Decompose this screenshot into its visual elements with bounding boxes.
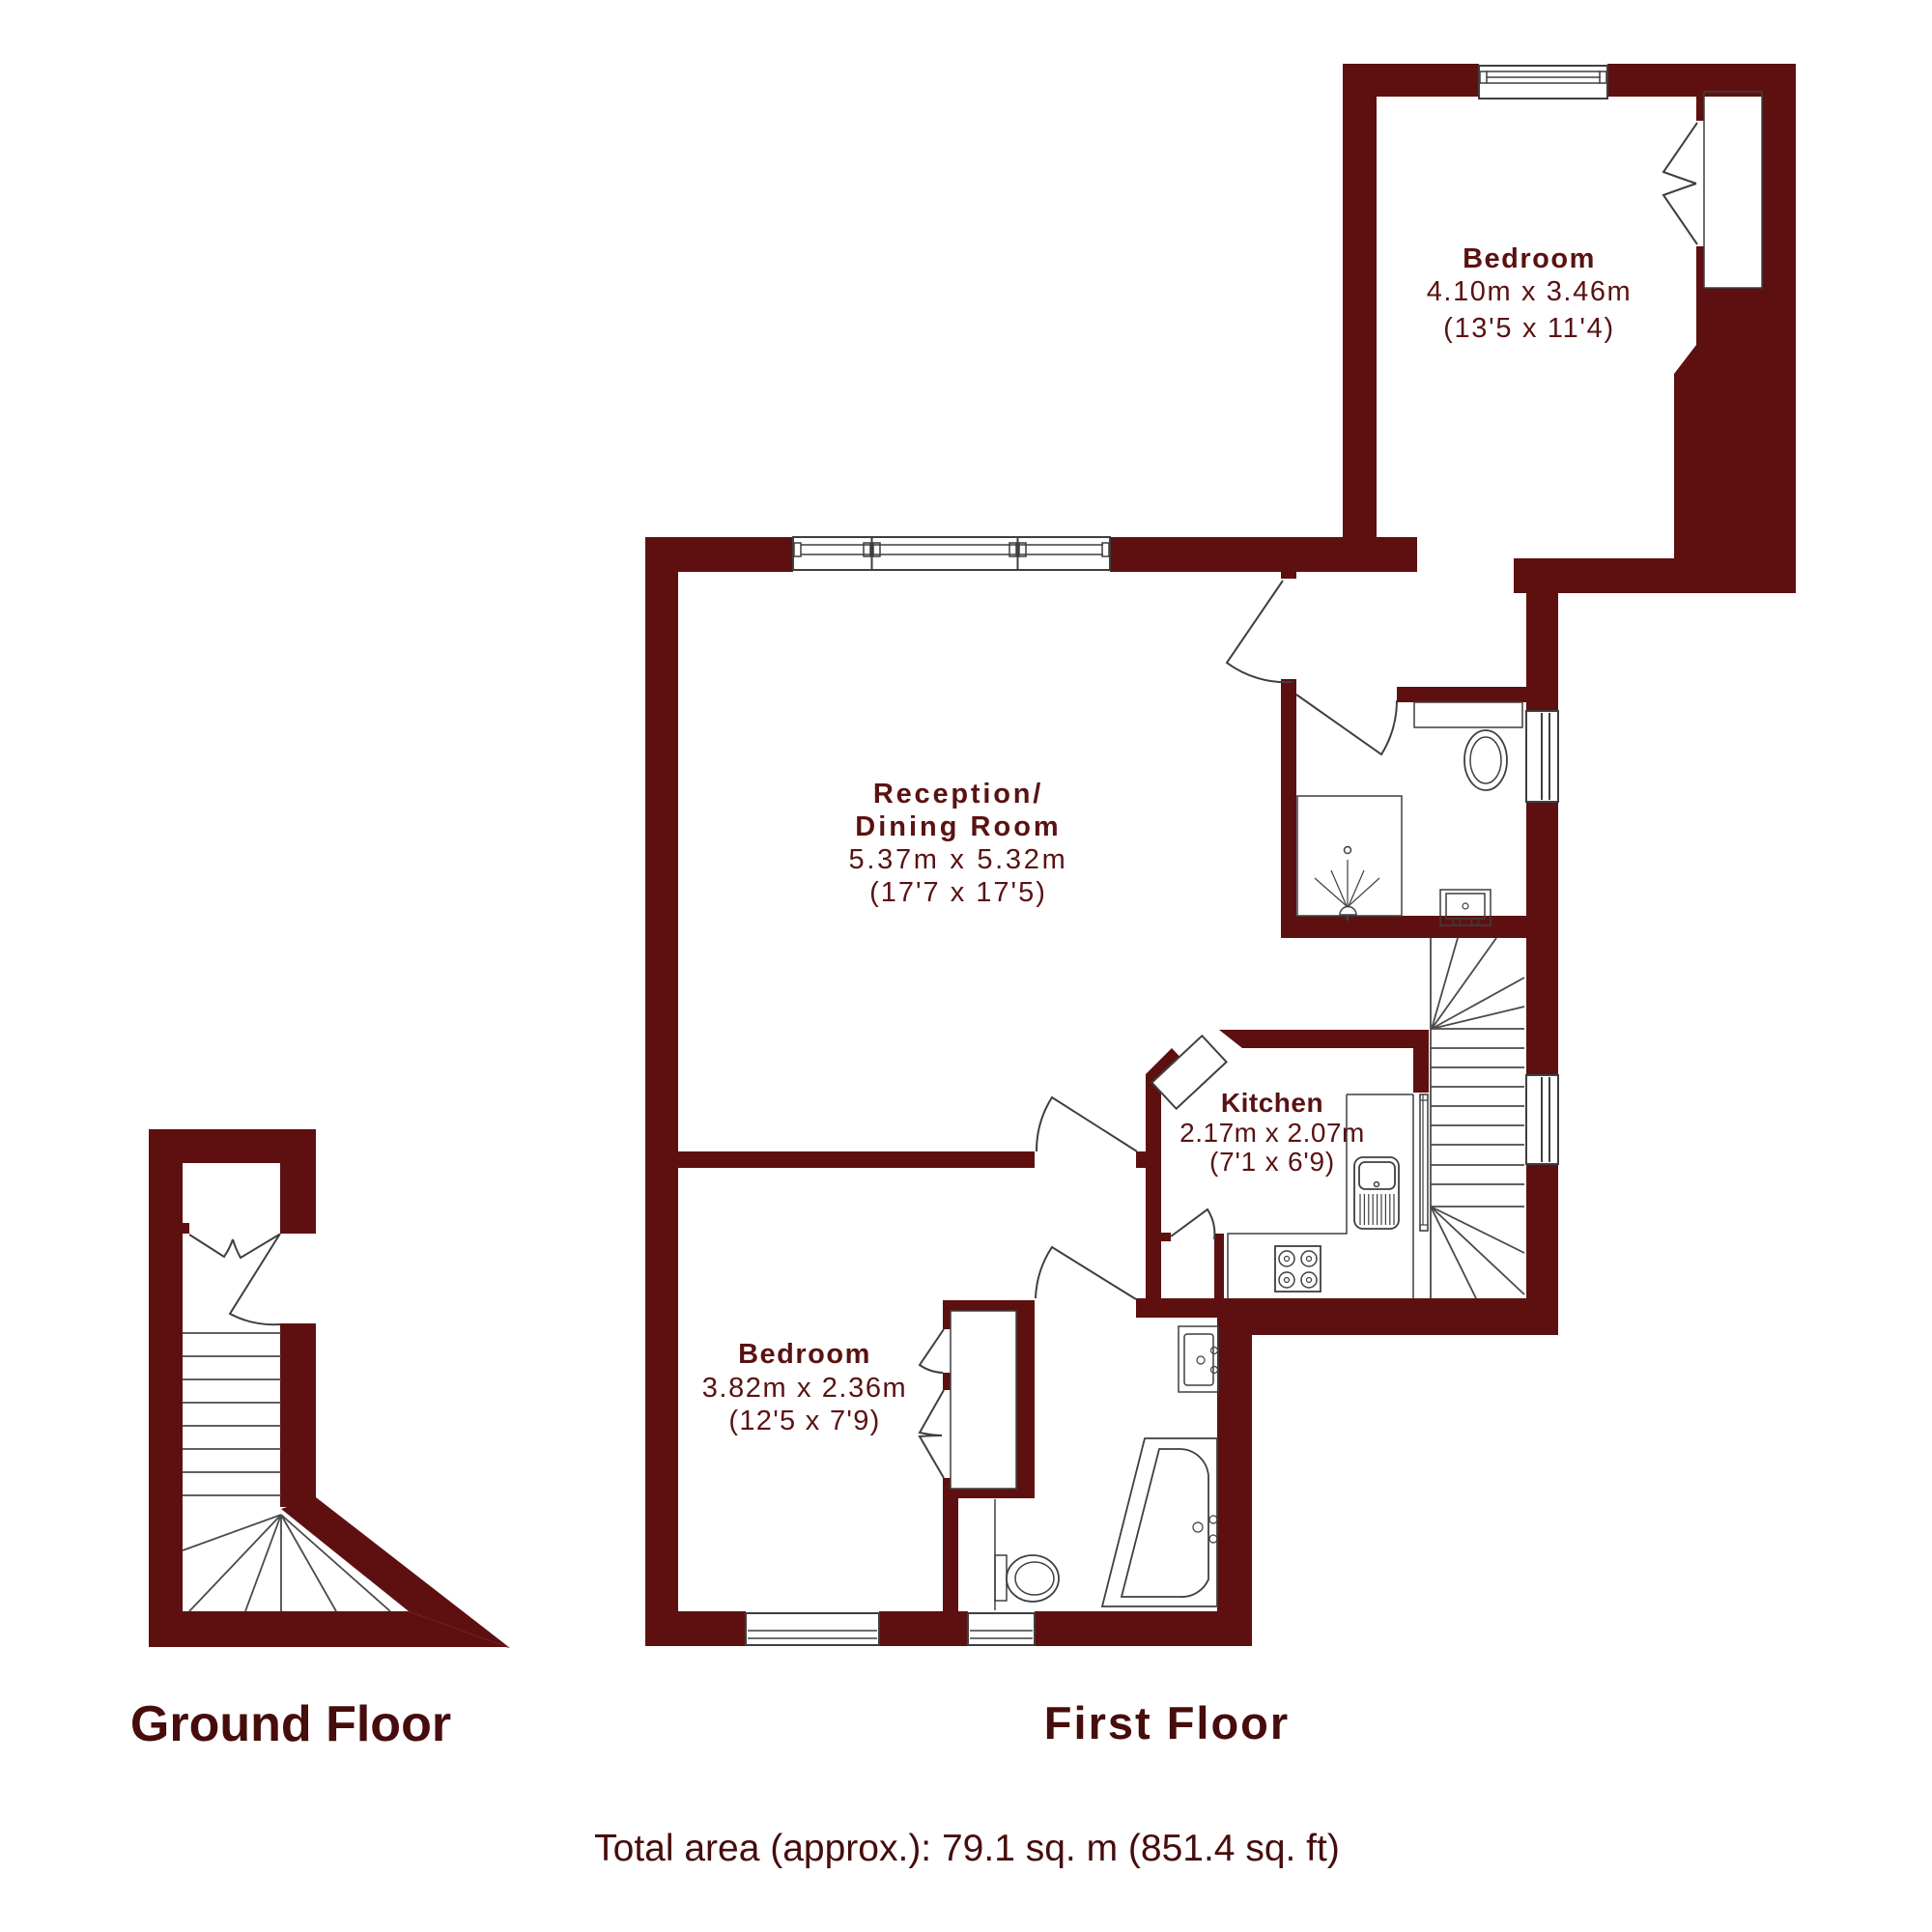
svg-text:5.37m x 5.32m: 5.37m x 5.32m (849, 844, 1068, 875)
svg-text:Dining Room: Dining Room (855, 811, 1061, 842)
svg-text:(12'5 x 7'9): (12'5 x 7'9) (728, 1406, 880, 1436)
svg-text:4.10m x 3.46m: 4.10m x 3.46m (1427, 276, 1633, 307)
svg-text:(13'5 x 11'4): (13'5 x 11'4) (1443, 313, 1615, 344)
svg-text:(7'1 x 6'9): (7'1 x 6'9) (1209, 1147, 1335, 1177)
svg-text:First Floor: First Floor (1044, 1697, 1290, 1748)
svg-text:2.17m x 2.07m: 2.17m x 2.07m (1179, 1118, 1365, 1148)
svg-text:Bedroom: Bedroom (1463, 243, 1596, 274)
svg-text:Reception/: Reception/ (873, 779, 1043, 810)
svg-text:(17'7 x 17'5): (17'7 x 17'5) (869, 877, 1047, 908)
svg-text:Bedroom: Bedroom (738, 1339, 871, 1370)
svg-text:Total area (approx.): 79.1 sq.: Total area (approx.): 79.1 sq. m (851.4 … (594, 1828, 1340, 1869)
svg-text:3.82m x 2.36m: 3.82m x 2.36m (702, 1373, 908, 1404)
svg-text:Ground Floor: Ground Floor (130, 1696, 451, 1752)
svg-text:Kitchen: Kitchen (1221, 1088, 1323, 1118)
